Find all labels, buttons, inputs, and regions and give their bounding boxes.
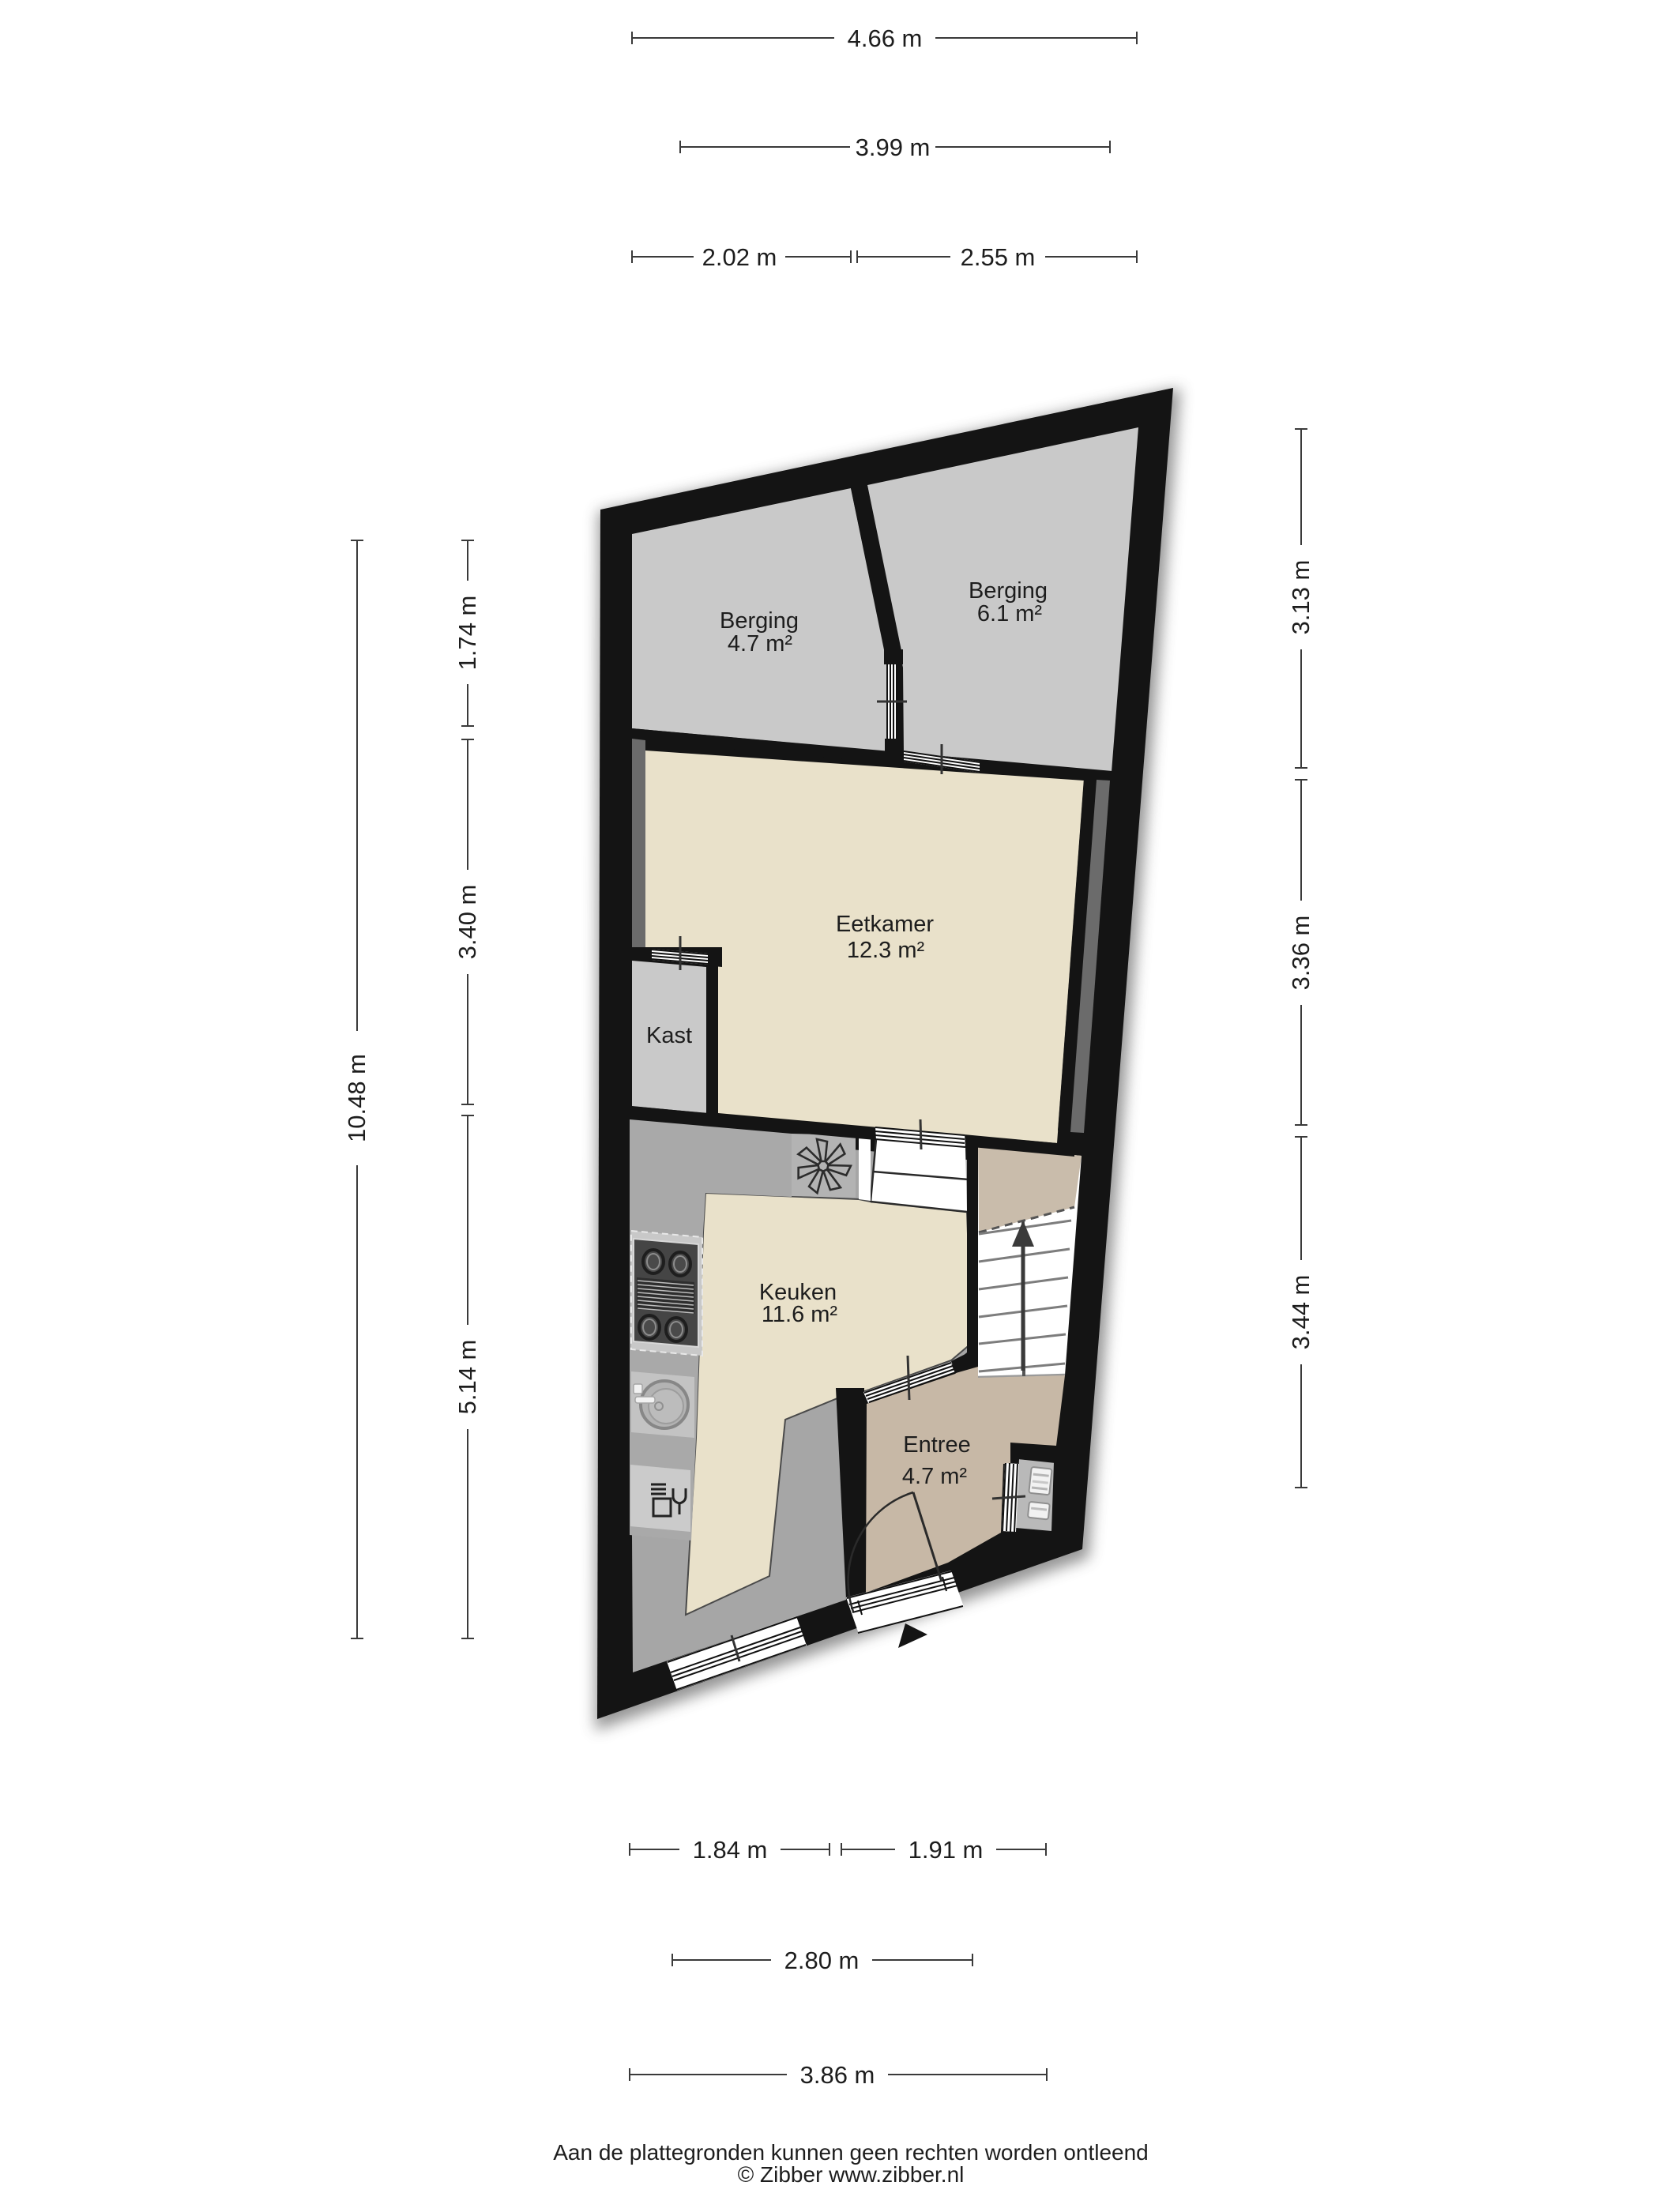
svg-text:3.44 m: 3.44 m bbox=[1287, 1275, 1315, 1350]
svg-text:3.13 m: 3.13 m bbox=[1287, 560, 1315, 635]
svg-text:Aan de plattegronden kunnen ge: Aan de plattegronden kunnen geen rechten… bbox=[553, 2140, 1148, 2165]
svg-text:3.99 m: 3.99 m bbox=[856, 134, 931, 161]
svg-text:© Zibber www.zibber.nl: © Zibber www.zibber.nl bbox=[738, 2162, 965, 2187]
svg-text:1.74 m: 1.74 m bbox=[453, 596, 481, 671]
svg-text:11.6 m²: 11.6 m² bbox=[762, 1302, 838, 1327]
svg-text:12.3 m²: 12.3 m² bbox=[847, 938, 925, 963]
svg-text:4.7 m²: 4.7 m² bbox=[728, 631, 793, 656]
svg-text:3.40 m: 3.40 m bbox=[453, 885, 481, 960]
svg-text:Kast: Kast bbox=[646, 1023, 692, 1048]
svg-text:1.91 m: 1.91 m bbox=[908, 1836, 984, 1864]
svg-text:2.02 m: 2.02 m bbox=[702, 243, 777, 271]
svg-text:6.1 m²: 6.1 m² bbox=[977, 601, 1043, 626]
svg-text:2.80 m: 2.80 m bbox=[784, 1947, 860, 1974]
svg-text:4.7 m²: 4.7 m² bbox=[902, 1464, 968, 1489]
svg-text:Berging: Berging bbox=[969, 578, 1048, 604]
svg-text:10.48 m: 10.48 m bbox=[343, 1054, 371, 1142]
svg-text:Entree: Entree bbox=[903, 1432, 970, 1458]
svg-text:Eetkamer: Eetkamer bbox=[836, 912, 934, 937]
svg-text:2.55 m: 2.55 m bbox=[961, 243, 1036, 271]
svg-text:3.86 m: 3.86 m bbox=[800, 2061, 875, 2089]
svg-text:Berging: Berging bbox=[720, 608, 799, 634]
svg-text:1.84 m: 1.84 m bbox=[693, 1836, 768, 1864]
svg-text:5.14 m: 5.14 m bbox=[453, 1340, 481, 1415]
svg-text:4.66 m: 4.66 m bbox=[848, 24, 923, 52]
svg-text:3.36 m: 3.36 m bbox=[1287, 916, 1315, 991]
